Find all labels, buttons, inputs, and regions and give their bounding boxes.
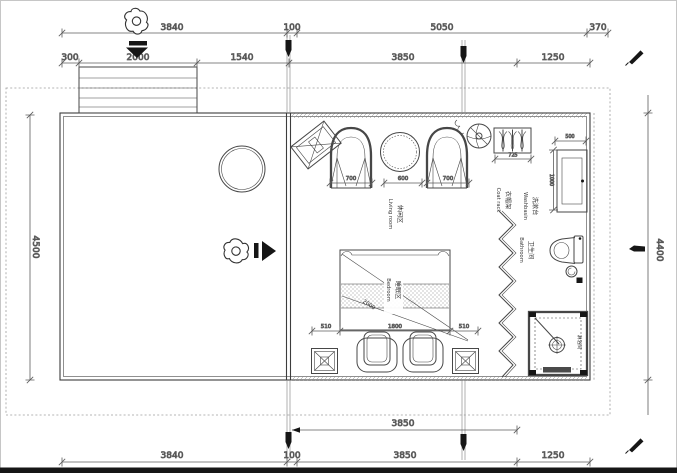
dim-3850-top: 3850 bbox=[392, 53, 415, 63]
nightstand-right bbox=[453, 349, 479, 374]
toilet bbox=[550, 236, 583, 283]
zigzag-partition bbox=[499, 211, 513, 377]
dim-600: 600 bbox=[398, 176, 409, 182]
washbasin-bowl bbox=[562, 158, 582, 204]
svg-text:Bathroom: Bathroom bbox=[518, 237, 524, 262]
coat-rack-dim: 725 bbox=[492, 153, 534, 164]
svg-text:卫生间: 卫生间 bbox=[527, 241, 535, 260]
faucet-icon bbox=[581, 180, 584, 183]
axis-lines bbox=[286, 35, 467, 460]
living-dim-row: 700 600 700 bbox=[327, 176, 472, 188]
level-marker-icon bbox=[629, 246, 645, 252]
svg-text:洗漱台: 洗漱台 bbox=[531, 197, 539, 216]
svg-text:Coat rack: Coat rack bbox=[495, 188, 501, 213]
nightstand-left bbox=[312, 349, 338, 374]
dim-510-right: 510 bbox=[459, 324, 470, 330]
pen-icon bbox=[626, 438, 644, 453]
dim-3840-bottom: 3840 bbox=[161, 451, 184, 461]
dim-700-left: 700 bbox=[346, 176, 357, 182]
shower-room: 淋浴间 bbox=[529, 312, 587, 375]
dim-1540: 1540 bbox=[231, 53, 254, 63]
person-top-icon bbox=[223, 238, 250, 264]
hanger-icon bbox=[509, 130, 517, 152]
round-table bbox=[219, 146, 265, 192]
floor-drain bbox=[566, 266, 577, 277]
washbasin-area: 500 1000 洗漱台 Washbasin bbox=[522, 134, 589, 220]
dim-5050-top: 5050 bbox=[431, 23, 454, 33]
dim-1250-top: 1250 bbox=[542, 53, 565, 63]
entry-arrow-right-icon bbox=[262, 241, 276, 261]
dim-3850-bottom: 3850 bbox=[394, 451, 417, 461]
hanger-icon bbox=[499, 130, 507, 152]
axis-marker-icon bbox=[461, 46, 467, 63]
bedroom: 2000 睡眠区 Bedroom 510 1800 510 bbox=[309, 250, 481, 374]
shower-threshold bbox=[543, 367, 571, 373]
floor-plan-canvas: 3840 100 5050 370 300 2000 1540 3850 125… bbox=[0, 0, 677, 473]
floor-plan-drawing: 3840 100 5050 370 300 2000 1540 3850 125… bbox=[0, 0, 677, 473]
bottom-border-bar bbox=[0, 468, 677, 473]
axis-marker-icon bbox=[286, 40, 292, 57]
dim-3840-top: 3840 bbox=[161, 23, 184, 33]
dim-right: 4400 bbox=[629, 95, 664, 415]
bedroom-chair-right bbox=[403, 332, 443, 372]
dim-700-right: 700 bbox=[443, 176, 454, 182]
bed-dim-row: 510 1800 510 bbox=[309, 324, 481, 336]
top-wall-hatch bbox=[290, 114, 587, 119]
dim-500: 500 bbox=[565, 134, 574, 140]
louver-panel bbox=[291, 121, 341, 169]
dim-4500-left: 4500 bbox=[30, 236, 40, 259]
living-room-label: 休闲区 Living room bbox=[387, 199, 404, 230]
coat-rack-label: 衣帽架 Coat rack bbox=[495, 188, 512, 213]
svg-text:Bedroom: Bedroom bbox=[385, 278, 391, 301]
svg-text:衣帽架: 衣帽架 bbox=[504, 191, 512, 210]
entrance-person-top bbox=[120, 5, 153, 58]
dim-1800: 1800 bbox=[388, 324, 402, 330]
svg-text:淋浴间: 淋浴间 bbox=[576, 335, 583, 350]
svg-text:休闲区: 休闲区 bbox=[396, 205, 404, 224]
svg-text:Washbasin: Washbasin bbox=[522, 192, 528, 220]
dim-row-bottom: 3840 100 3850 1250 bbox=[59, 451, 593, 467]
bottom-wall-hatch bbox=[290, 376, 587, 381]
dim-1250-bottom: 1250 bbox=[542, 451, 565, 461]
washbasin-width-dim: 500 bbox=[552, 134, 589, 146]
hanger-icon bbox=[518, 130, 526, 152]
dim-bottom-inner: 3850 bbox=[292, 419, 520, 435]
page-frame bbox=[0, 1, 677, 473]
coffee-table bbox=[381, 133, 420, 172]
dim-1000: 1000 bbox=[548, 174, 554, 186]
entrance-steps bbox=[79, 67, 197, 113]
bedroom-chair-left bbox=[357, 332, 397, 372]
bathroom: 卫生间 Bathroom bbox=[499, 211, 583, 377]
washbasin-label: 洗漱台 Washbasin bbox=[522, 192, 539, 220]
pen-icon bbox=[626, 50, 644, 65]
dim-370-top: 370 bbox=[589, 23, 606, 33]
axis-marker-icon bbox=[286, 432, 292, 449]
shower-label: 淋浴间 bbox=[576, 335, 583, 350]
living-room: 700 600 700 休闲区 Living room bbox=[291, 120, 491, 229]
dim-left: 4500 bbox=[26, 112, 41, 383]
svg-text:睡眠区: 睡眠区 bbox=[394, 281, 402, 300]
axis-marker-icon bbox=[461, 434, 467, 451]
dim-725: 725 bbox=[508, 153, 517, 159]
left-room bbox=[219, 146, 276, 264]
dim-3850-bottom-inner: 3850 bbox=[392, 419, 415, 429]
dim-4400-right: 4400 bbox=[654, 239, 664, 262]
dim-100-top: 100 bbox=[283, 23, 300, 33]
svg-text:Living room: Living room bbox=[387, 199, 393, 230]
dim-510-left: 510 bbox=[321, 324, 332, 330]
bathroom-label: 卫生间 Bathroom bbox=[518, 237, 535, 262]
shower-door bbox=[535, 318, 559, 344]
dim-100-bottom: 100 bbox=[283, 451, 300, 461]
dim-300: 300 bbox=[61, 53, 78, 63]
